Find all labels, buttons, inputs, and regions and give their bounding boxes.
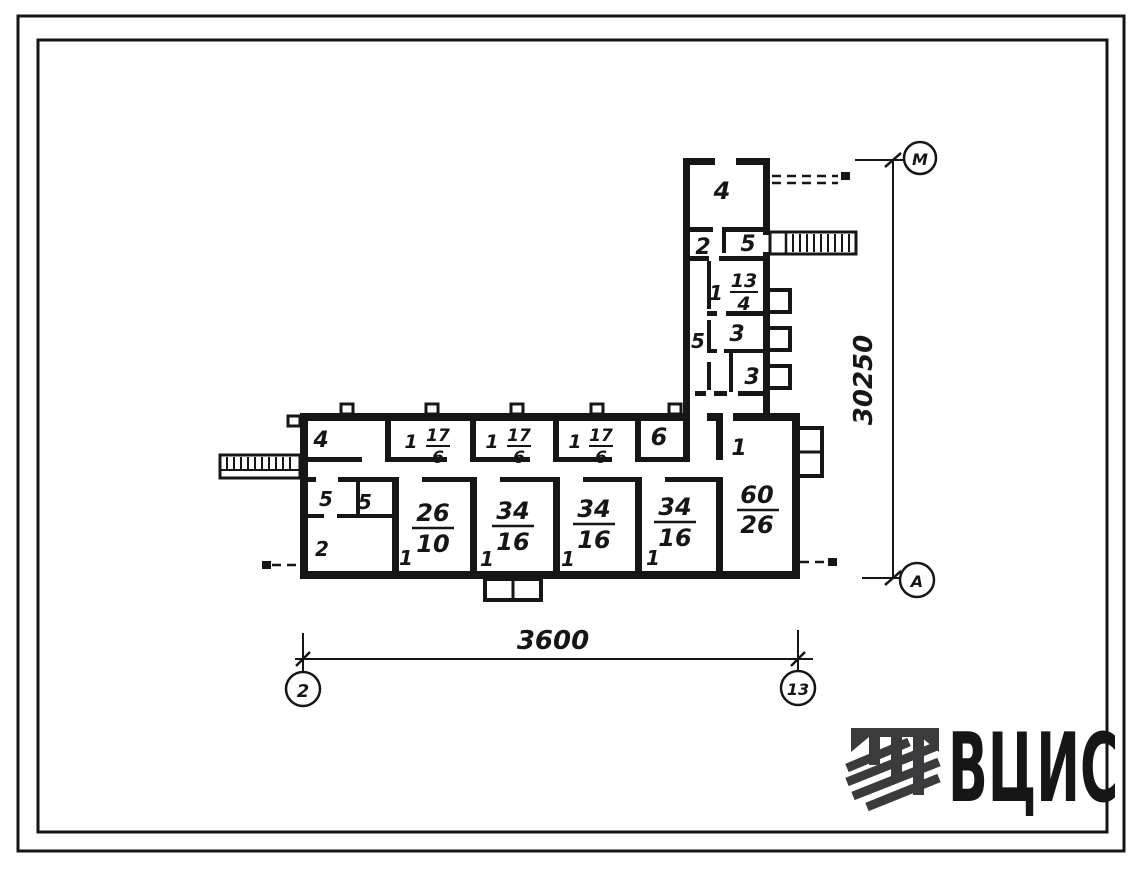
room-label: 1 [480, 547, 494, 571]
scanned-drawing-page: 4 2 5 1 13 4 5 3 3 4 1 17 6 1 17 6 1 17 … [0, 0, 1139, 869]
area-numerator: 13 [731, 270, 757, 292]
room-label: 5 [358, 490, 372, 514]
staircase-left [220, 455, 300, 478]
room-label: 5 [740, 232, 755, 257]
area-numerator: 26 [416, 499, 449, 527]
area-numerator: 17 [507, 426, 531, 446]
area-denominator: 6 [432, 448, 444, 468]
room-label: 1 [561, 547, 575, 571]
room-label: 4 [713, 177, 731, 205]
area-numerator: 34 [496, 497, 529, 525]
room-label: 1 [399, 546, 413, 570]
vcis-logo-icon [847, 728, 939, 807]
area-denominator: 16 [496, 528, 529, 556]
axis-label-2: 2 [297, 681, 310, 702]
staircase-right [770, 232, 856, 254]
porch-bottom [485, 579, 541, 600]
vcis-logo: ВЦИС [847, 714, 1118, 824]
area-numerator: 34 [577, 495, 610, 523]
area-numerator: 17 [426, 426, 450, 446]
room-label: 3 [729, 322, 744, 347]
room-label: 1 [731, 436, 746, 461]
axis-label-A: А [909, 572, 923, 591]
axis-label-M: М [912, 150, 928, 169]
area-denominator: 16 [658, 524, 691, 552]
room-label: 1 [709, 281, 723, 305]
area-numerator: 34 [658, 493, 691, 521]
area-denominator: 6 [595, 448, 607, 468]
room-label: 4 [312, 428, 328, 453]
room-label: 1 [485, 431, 498, 453]
room-label: 6 [651, 423, 668, 451]
room-label: 1 [568, 431, 581, 453]
area-denominator: 10 [416, 530, 449, 558]
room-label: 1 [646, 546, 660, 570]
dimension-value-right: 30250 [849, 335, 879, 425]
area-denominator: 16 [577, 526, 610, 554]
room-label: 2 [695, 235, 710, 260]
area-denominator: 6 [513, 448, 525, 468]
upper-wing-labels: 4 2 5 1 13 4 5 3 3 [691, 177, 760, 390]
axis-label-13: 13 [787, 680, 809, 699]
floor-plan-svg: 4 2 5 1 13 4 5 3 3 4 1 17 6 1 17 6 1 17 … [0, 0, 1139, 869]
area-numerator: 60 [740, 481, 773, 509]
room-label: 3 [744, 365, 759, 390]
axis-markers: М А 2 13 [286, 142, 936, 706]
room-label: 2 [315, 537, 329, 561]
area-numerator: 17 [589, 426, 613, 446]
area-denominator: 4 [736, 293, 750, 315]
room-label: 1 [404, 431, 417, 453]
dimension-value-bottom: 3600 [517, 626, 589, 656]
window-bumps [768, 290, 790, 388]
walls [300, 158, 800, 579]
vcis-logo-text: ВЦИС [948, 714, 1118, 824]
room-label: 5 [319, 487, 333, 511]
porch-right [798, 428, 822, 476]
area-denominator: 26 [740, 511, 773, 539]
room-label: 5 [691, 329, 705, 353]
